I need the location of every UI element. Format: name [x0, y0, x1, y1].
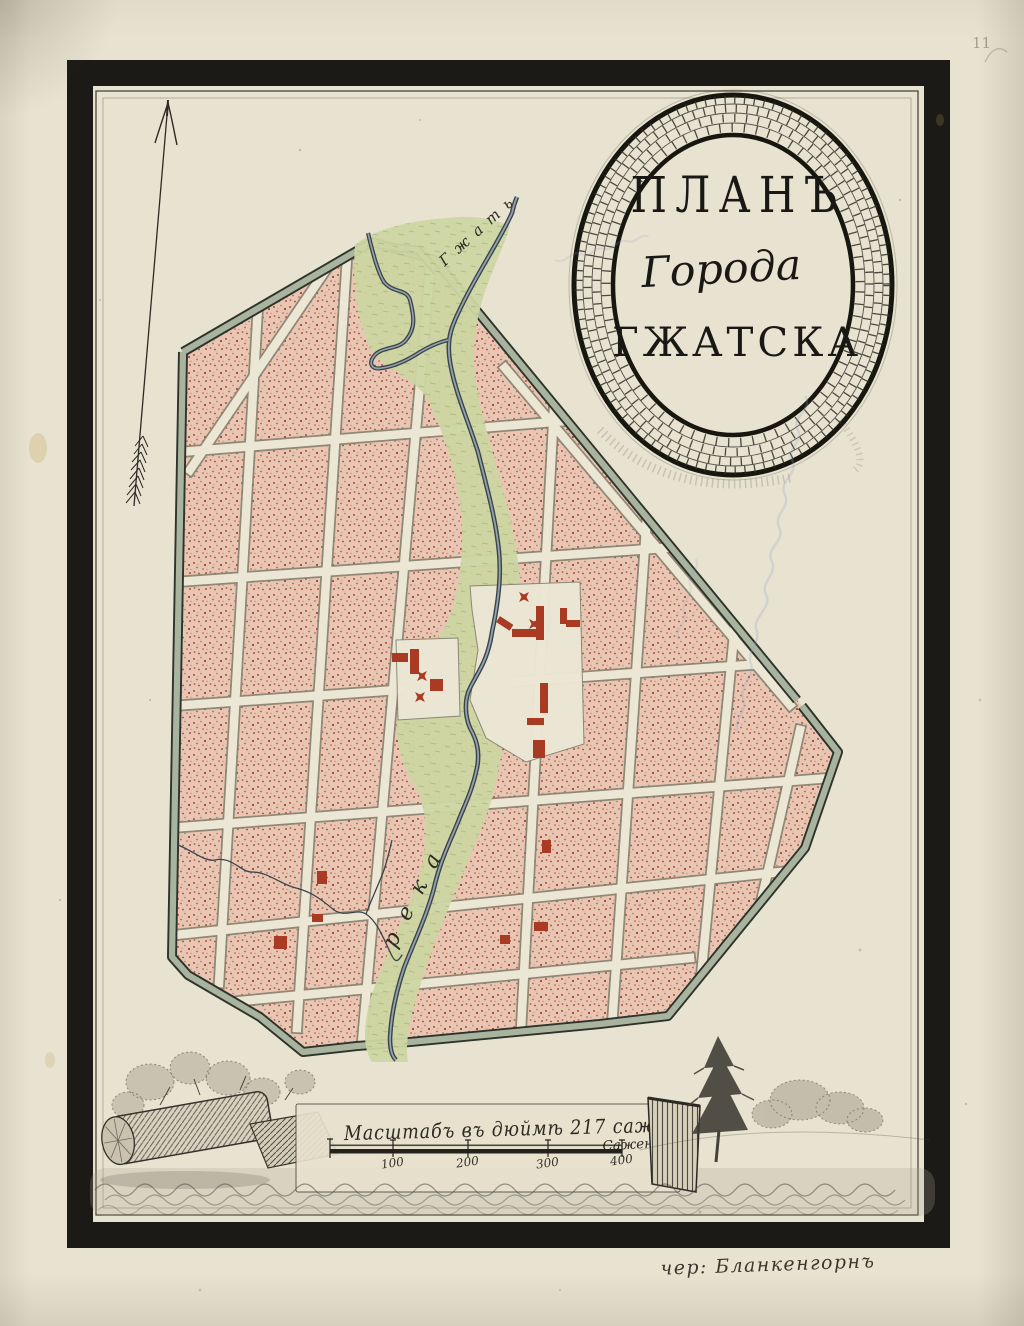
page-number: 11 — [972, 34, 991, 52]
title-cartouche: ПЛАНЪ Города ГЖАТСКА — [569, 90, 897, 484]
map-scan-page: река Гжать ПЛАНЪ Города ГЖАТСКА — [0, 0, 1024, 1326]
scale-bar: Масштабъ въ дюймѣ 217 саж. Сажен 100 200… — [296, 1104, 680, 1192]
wattle-fence-sketch — [648, 1098, 700, 1192]
scale-vignette: Масштабъ въ дюймѣ 217 саж. Сажен 100 200… — [90, 1036, 935, 1216]
north-arrow-icon — [126, 100, 177, 506]
map-title-line1: ПЛАНЪ — [631, 166, 846, 224]
map-title-line2: Города — [639, 240, 802, 297]
cartographer-signature: чер: Бланкенгорнъ — [660, 1250, 876, 1279]
map-artwork: река Гжать ПЛАНЪ Города ГЖАТСКА — [0, 0, 1024, 1326]
map-title-line3: ГЖАТСКА — [612, 320, 862, 366]
